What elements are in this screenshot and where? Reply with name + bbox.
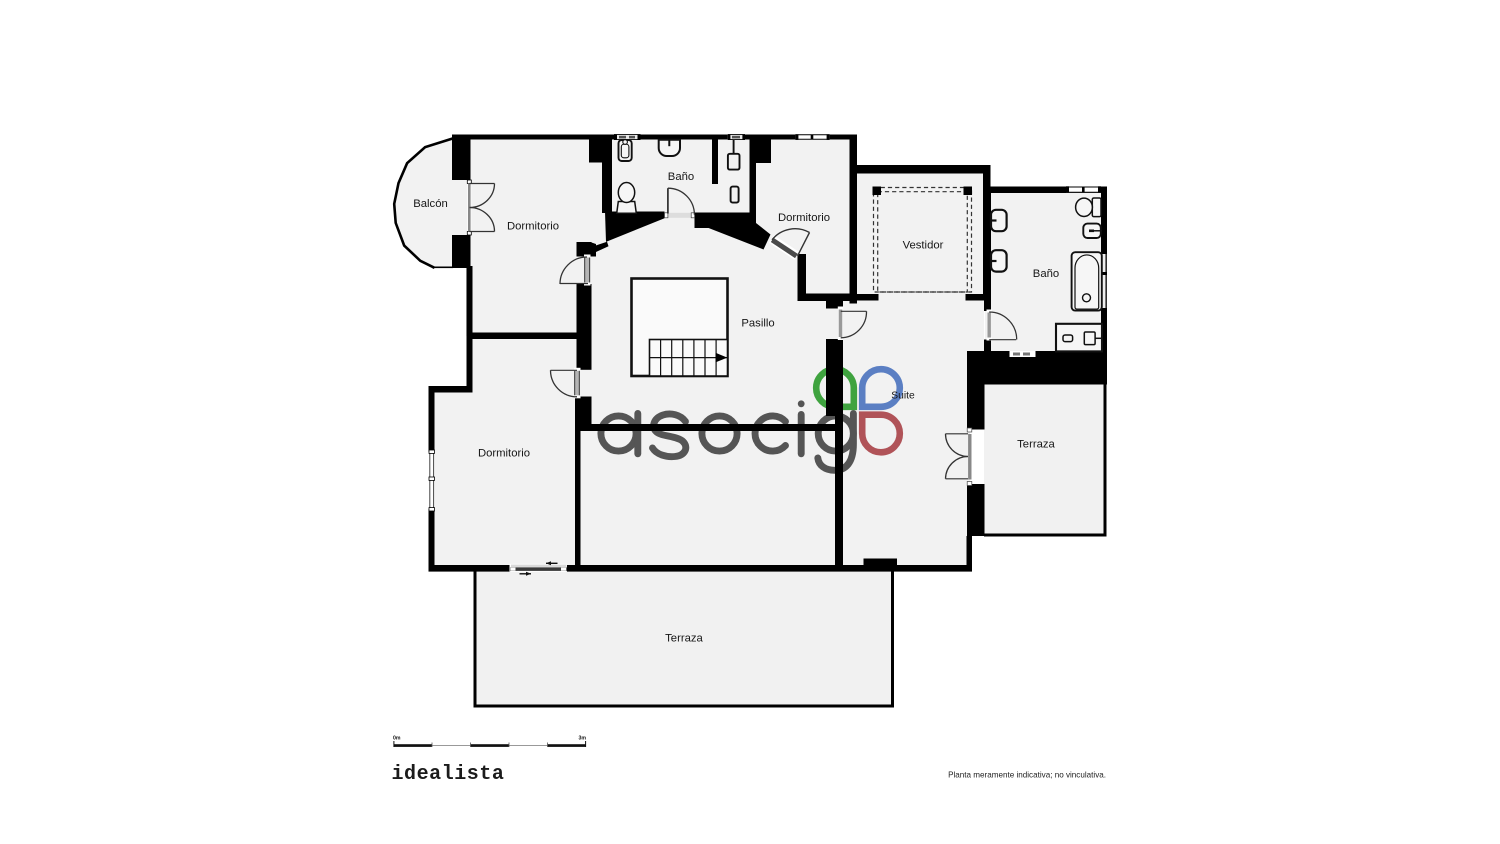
svg-text:3m: 3m — [579, 736, 587, 742]
svg-text:0m: 0m — [393, 736, 401, 742]
svg-text:Terraza: Terraza — [665, 633, 703, 645]
svg-text:Dormitorio: Dormitorio — [478, 448, 530, 460]
svg-text:Pasillo: Pasillo — [741, 318, 774, 330]
svg-text:Suite: Suite — [891, 391, 915, 402]
svg-text:Dormitorio: Dormitorio — [507, 221, 559, 233]
svg-text:Terraza: Terraza — [1017, 439, 1055, 451]
svg-text:Balcón: Balcón — [413, 198, 448, 210]
svg-text:Baño: Baño — [668, 171, 694, 183]
svg-text:Vestidor: Vestidor — [903, 240, 944, 252]
svg-text:Planta meramente indicativa; n: Planta meramente indicativa; no vinculat… — [948, 771, 1106, 780]
svg-text:idealista: idealista — [392, 763, 505, 786]
svg-text:Dormitorio: Dormitorio — [778, 212, 830, 224]
svg-text:Baño: Baño — [1033, 268, 1059, 280]
